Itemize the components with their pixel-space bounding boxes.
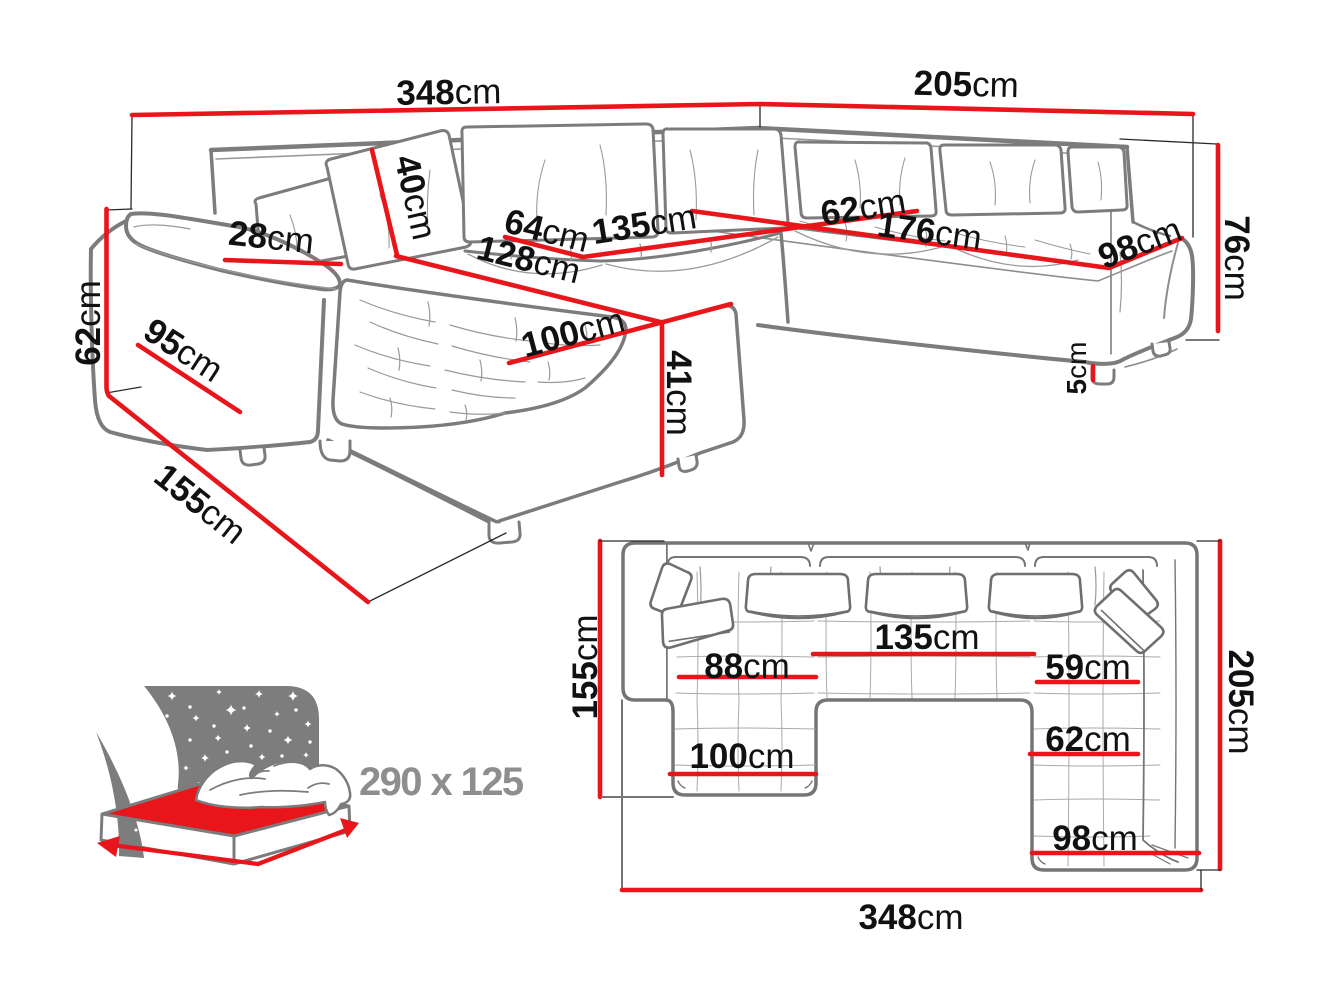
svg-text:135cm: 135cm <box>874 618 979 657</box>
svg-text:100cm: 100cm <box>689 737 794 776</box>
svg-text:62cm: 62cm <box>69 280 108 366</box>
svg-text:205cm: 205cm <box>913 64 1019 105</box>
svg-text:348cm: 348cm <box>858 898 963 937</box>
svg-text:76cm: 76cm <box>1217 215 1256 301</box>
svg-text:290 x 125: 290 x 125 <box>359 760 524 804</box>
svg-text:41cm: 41cm <box>659 350 698 436</box>
svg-text:155cm: 155cm <box>566 614 605 719</box>
svg-text:59cm: 59cm <box>1045 648 1131 687</box>
svg-text:98cm: 98cm <box>1052 819 1138 858</box>
svg-text:95cm: 95cm <box>137 311 230 390</box>
svg-text:62cm: 62cm <box>1045 720 1131 759</box>
svg-text:5cm: 5cm <box>1061 342 1092 395</box>
svg-text:88cm: 88cm <box>704 647 790 686</box>
svg-text:348cm: 348cm <box>396 72 502 113</box>
svg-text:205cm: 205cm <box>1221 649 1260 754</box>
